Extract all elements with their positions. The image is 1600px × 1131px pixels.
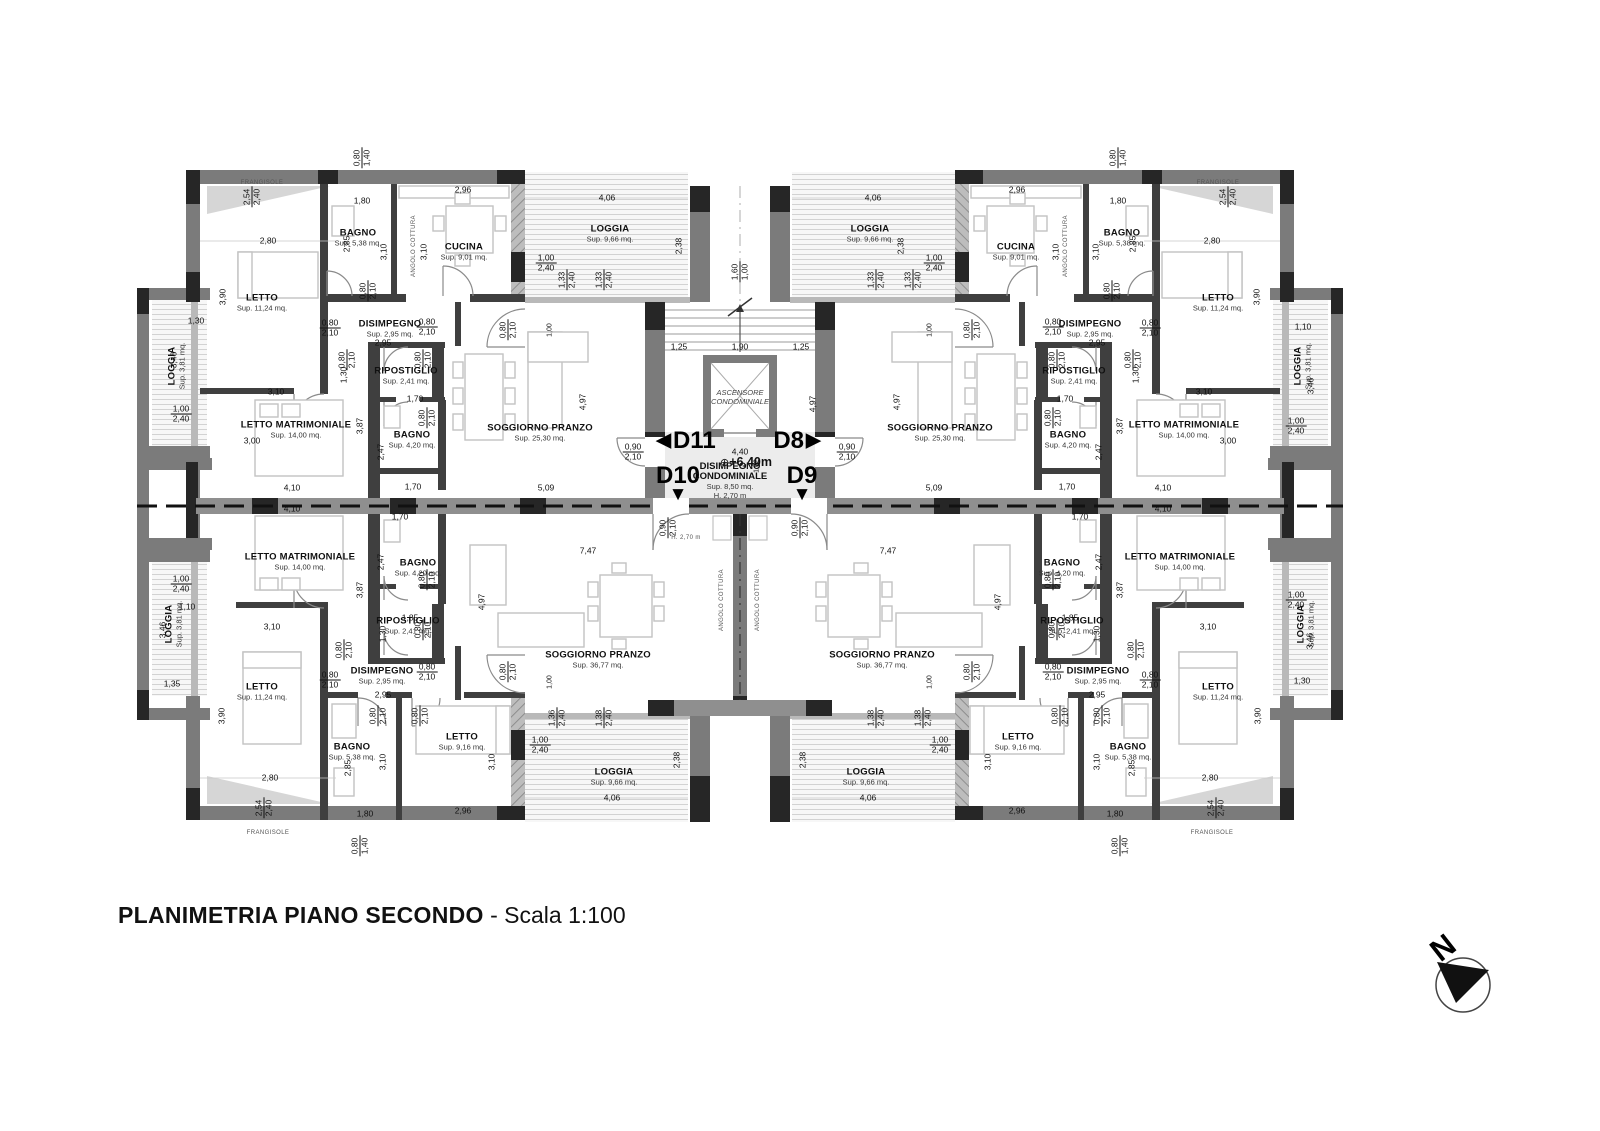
floor-plan-drawing — [0, 0, 1600, 1131]
floor-plan-canvas: LETTOSup. 11,24 mq.BAGNOSup. 5,38 mq.CUC… — [0, 0, 1600, 1131]
elevator-label: ASCENSORE CONDOMINIALE — [711, 388, 769, 406]
drawing-title: PLANIMETRIA PIANO SECONDO - Scala 1:100 — [118, 902, 626, 929]
title-main: PLANIMETRIA PIANO SECONDO — [118, 902, 484, 928]
title-scale: - Scala 1:100 — [484, 902, 626, 928]
level-marker: ⊕+6,40m — [720, 455, 772, 469]
level-symbol-icon: ⊕ — [720, 457, 729, 469]
